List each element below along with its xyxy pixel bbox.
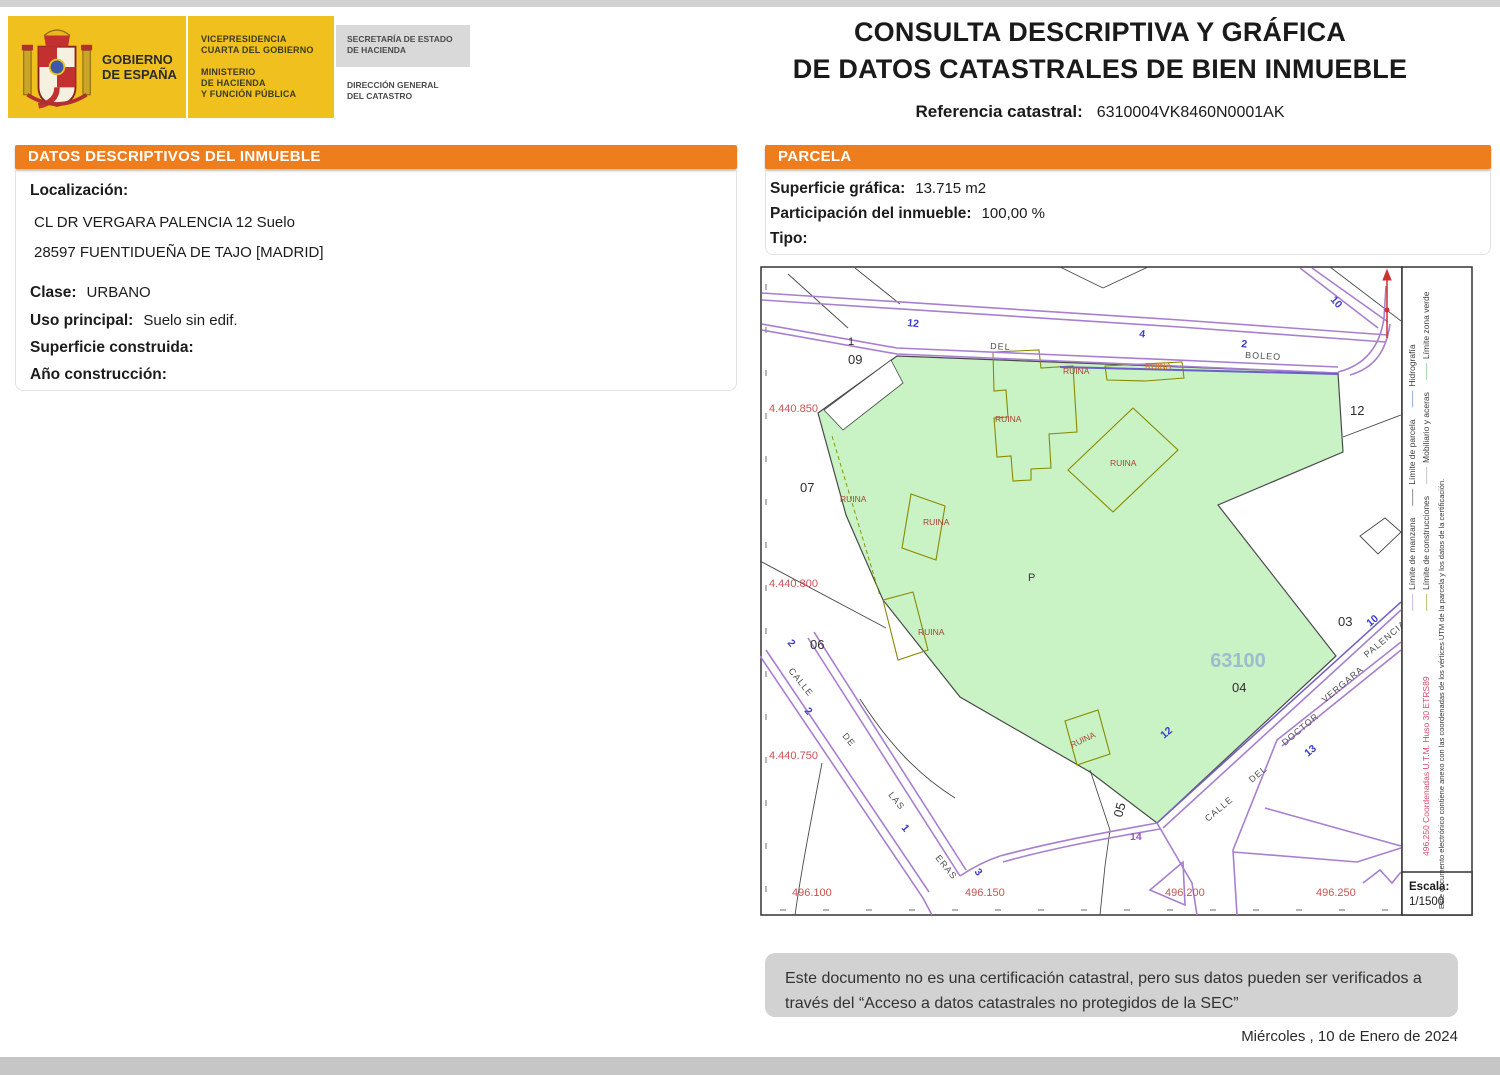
legend-item-label: Límite de manzana <box>1407 517 1417 590</box>
address-line2: 28597 FUENTIDUEÑA DE TAJO [MADRID] <box>34 244 324 261</box>
ruina-label: RUINA <box>840 494 867 504</box>
house-number: 14 <box>1130 831 1142 843</box>
parcel-letter: P <box>1028 572 1035 584</box>
ruina-label: RUINA <box>1145 361 1172 371</box>
house-number: 1 <box>848 336 854 348</box>
legend-dash: —— <box>1407 488 1417 506</box>
legend-dash: —— <box>1407 594 1417 612</box>
vicepresidencia-line2: CUARTA DEL GOBIERNO <box>201 45 334 56</box>
legend-dash: —— <box>1421 466 1431 484</box>
ministerio-line1: MINISTERIO <box>201 67 334 78</box>
bottom-border-strip <box>0 1057 1500 1075</box>
superficie-construida-label: Superficie construida: <box>30 339 194 356</box>
disclaimer-line2: través del “Acceso a datos catastrales n… <box>785 991 1438 1016</box>
datos-panel <box>15 169 737 391</box>
disclaimer-box: Este documento no es una certificación c… <box>765 953 1458 1017</box>
referencia-label: Referencia catastral: <box>916 102 1083 121</box>
tipo-label: Tipo: <box>770 230 808 247</box>
document-title: CONSULTA DESCRIPTIVA Y GRÁFICA DE DATOS … <box>770 14 1430 88</box>
legend-item-label: Mobiliario y aceras <box>1421 392 1431 463</box>
ministerio-box: VICEPRESIDENCIA CUARTA DEL GOBIERNO MINI… <box>188 16 334 118</box>
address-line1: CL DR VERGARA PALENCIA 12 Suelo <box>34 214 295 231</box>
referencia-catastral: Referencia catastral:6310004VK8460N0001A… <box>770 102 1430 122</box>
svg-text:——Límite de manzana——Límite de: ——Límite de manzana——Límite de parcela——… <box>1407 344 1417 611</box>
ruina-label: RUINA <box>995 414 1022 424</box>
coord-y-label: 4.440.850 <box>769 403 818 415</box>
certification-note: Este documento electrónico contiene anex… <box>1437 479 1446 909</box>
title-line2: DE DATOS CATASTRALES DE BIEN INMUEBLE <box>770 51 1430 88</box>
ruina-label: RUINA <box>918 627 945 637</box>
document-date: Miércoles , 10 de Enero de 2024 <box>765 1028 1458 1045</box>
ruina-label: RUINA <box>1063 366 1090 376</box>
ministerio-line2: DE HACIENDA <box>201 78 334 89</box>
localizacion-label: Localización: <box>30 182 128 199</box>
svg-text:——Límite de construcciones——Mo: ——Límite de construcciones——Mobiliario y… <box>1421 291 1431 611</box>
clase-value: URBANO <box>87 284 151 301</box>
spain-coat-of-arms <box>20 23 94 111</box>
clase-label: Clase: <box>30 284 77 301</box>
coord-x-label: 496.150 <box>965 887 1005 899</box>
ministerio-line3: Y FUNCIÓN PÚBLICA <box>201 89 334 100</box>
direccion-line2: DEL CATASTRO <box>347 91 476 102</box>
cadastral-map: 4.440.850 4.440.800 4.440.750 496.100 49… <box>760 266 1473 916</box>
secretaria-line1: SECRETARÍA DE ESTADO <box>347 34 470 45</box>
coord-y-label: 4.440.750 <box>769 750 818 762</box>
gobierno-line1: GOBIERNO <box>102 52 177 67</box>
legend-item-label: Límite de parcela <box>1407 419 1417 484</box>
direccion-line1: DIRECCIÓN GENERAL <box>347 80 476 91</box>
uso-label: Uso principal: <box>30 312 133 329</box>
block-number: 07 <box>800 480 814 495</box>
section-header-datos: DATOS DESCRIPTIVOS DEL INMUEBLE <box>15 145 737 169</box>
house-number: 12 <box>907 317 920 330</box>
coord-x-label: 496.100 <box>792 887 832 899</box>
gobierno-line2: DE ESPAÑA <box>102 67 177 82</box>
superficie-grafica-value: 13.715 m2 <box>915 180 986 197</box>
anio-construccion-label: Año construcción: <box>30 366 167 383</box>
parcel-code: 63100 <box>1210 650 1266 672</box>
block-number: 04 <box>1232 680 1246 695</box>
gobierno-text: GOBIERNO DE ESPAÑA <box>102 52 177 82</box>
block-number: 12 <box>1350 403 1364 418</box>
secretaria-line2: DE HACIENDA <box>347 45 470 56</box>
cadastral-document-page: GOBIERNO DE ESPAÑA VICEPRESIDENCIA CUART… <box>0 0 1500 1075</box>
coord-y-label: 4.440.800 <box>769 578 818 590</box>
disclaimer-line1: Este documento no es una certificación c… <box>785 966 1438 991</box>
legend-dash: —— <box>1421 363 1431 381</box>
referencia-value: 6310004VK8460N0001AK <box>1097 104 1285 121</box>
legend-dash: —— <box>1421 594 1431 612</box>
uso-value: Suelo sin edif. <box>143 312 237 329</box>
secretaria-box: SECRETARÍA DE ESTADO DE HACIENDA <box>336 25 470 67</box>
block-number: 09 <box>848 352 862 367</box>
direccion-catastro: DIRECCIÓN GENERAL DEL CATASTRO <box>336 80 476 102</box>
legend-dash: —— <box>1407 390 1417 408</box>
street-label: BOLEO <box>1245 350 1281 362</box>
legend-item-label: Límite de construcciones <box>1421 496 1431 590</box>
block-number: 03 <box>1338 614 1352 629</box>
gobierno-logo-box: GOBIERNO DE ESPAÑA <box>8 16 186 118</box>
vicepresidencia-line1: VICEPRESIDENCIA <box>201 34 334 45</box>
participacion-label: Participación del inmueble: <box>770 205 972 222</box>
title-line1: CONSULTA DESCRIPTIVA Y GRÁFICA <box>770 14 1430 51</box>
coord-x-label: 496.250 <box>1316 887 1356 899</box>
legend-item-label: Límite zona verde <box>1421 291 1431 359</box>
utm-legend-text: 496.250 Coordenadas U.T.M. Huso 30 ETRS8… <box>1421 676 1431 856</box>
legend-item-label: Hidrografía <box>1407 344 1417 386</box>
section-header-parcela: PARCELA <box>765 145 1491 169</box>
coord-x-label: 496.200 <box>1165 887 1205 899</box>
street-label: DEL <box>990 341 1011 352</box>
participacion-value: 100,00 % <box>982 205 1045 222</box>
ruina-label: RUINA <box>1110 458 1137 468</box>
block-number: 06 <box>810 637 824 652</box>
superficie-grafica-label: Superficie gráfica: <box>770 180 905 197</box>
ruina-label: RUINA <box>923 517 950 527</box>
top-border-strip <box>0 0 1500 7</box>
